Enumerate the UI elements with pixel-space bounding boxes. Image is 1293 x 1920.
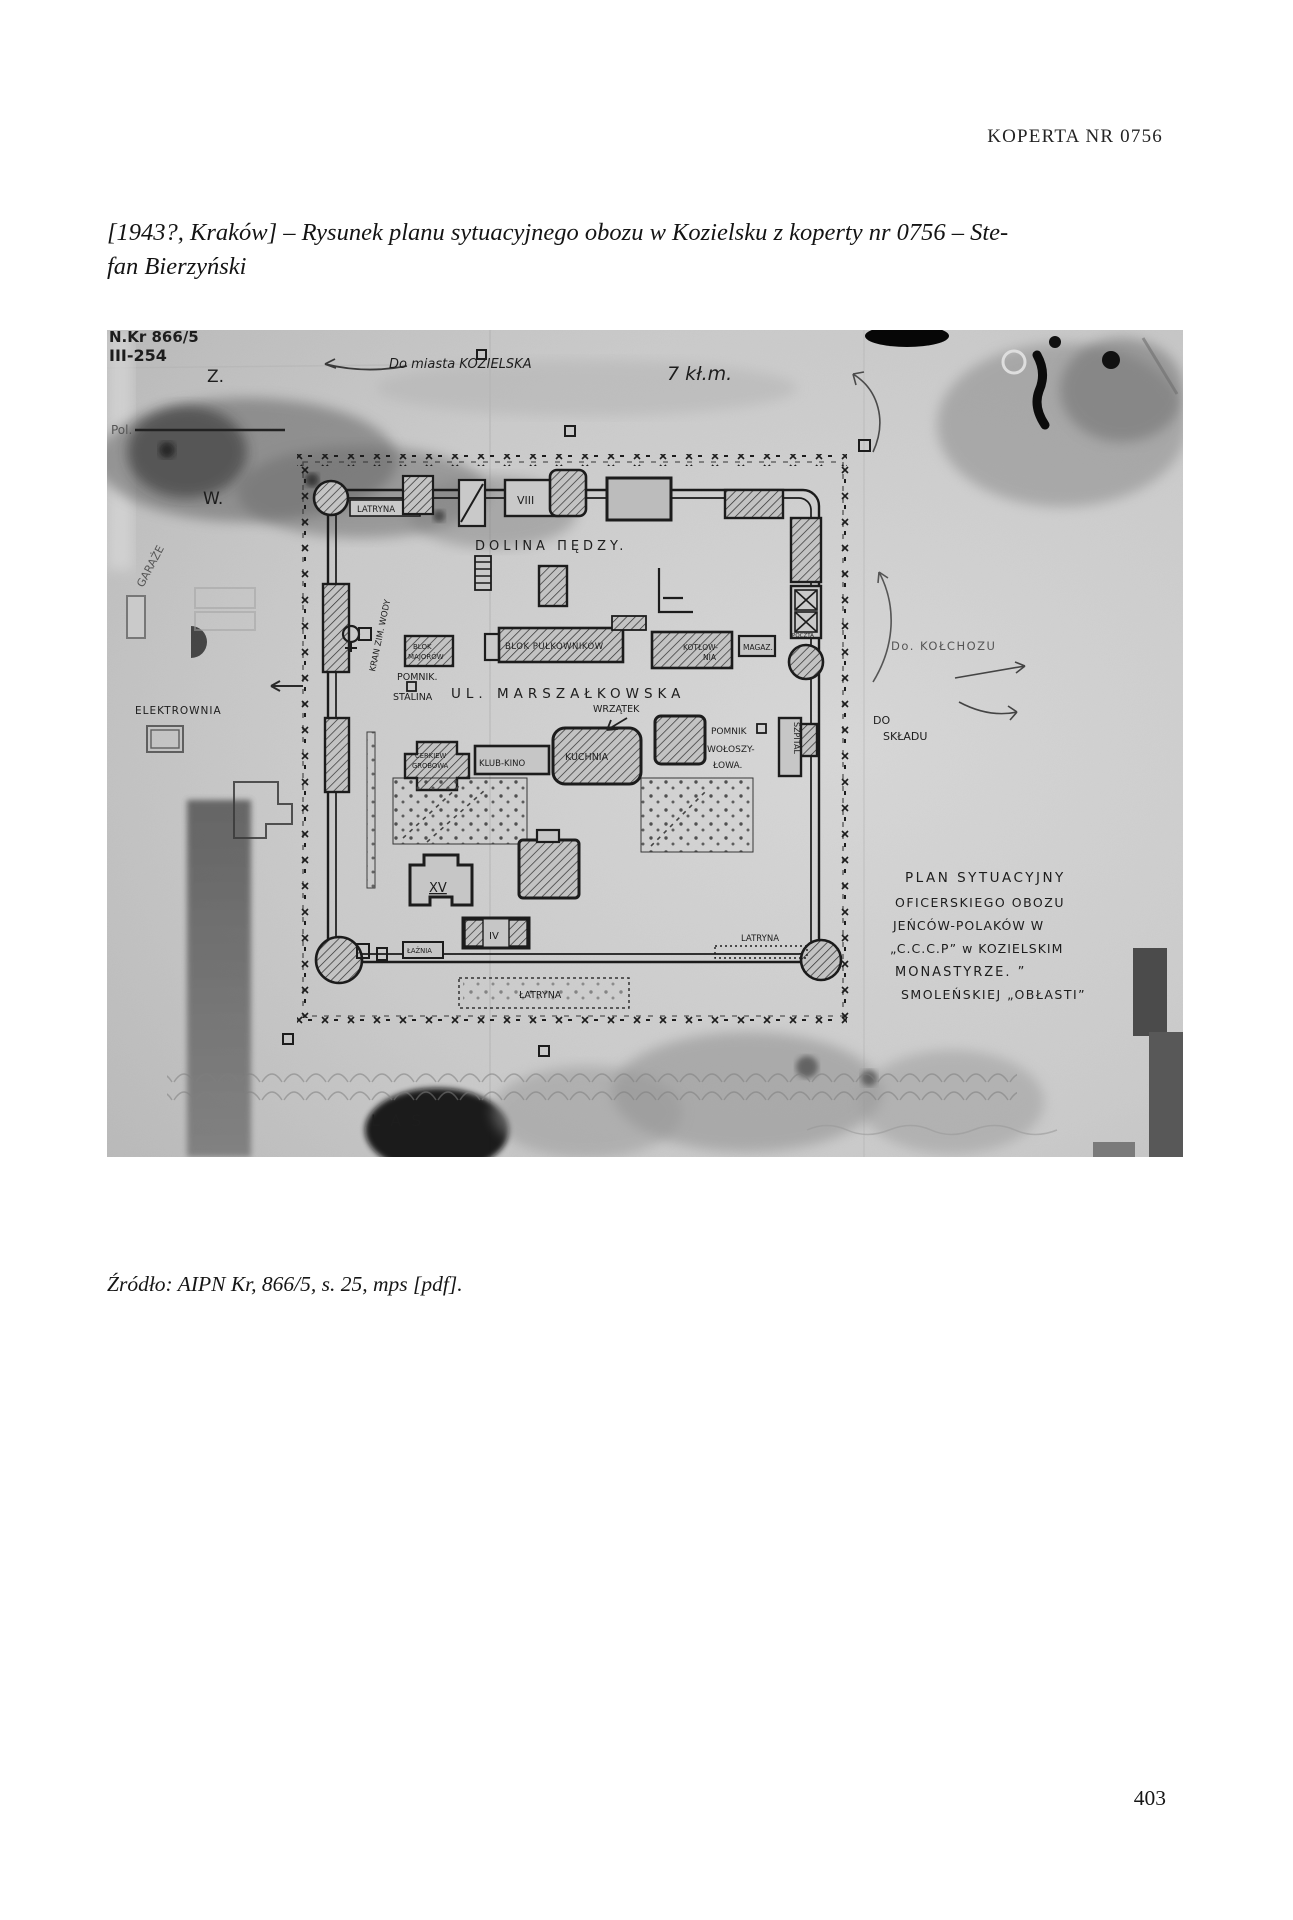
label-plan-6: SMOLEŃSKIEJ „OBŁASTI” <box>901 987 1086 1002</box>
source-line: Źródło: AIPN Kr, 866/5, s. 25, mps [pdf]… <box>107 1272 463 1297</box>
label-latryna-right: LATRYNA <box>741 934 779 944</box>
label-do-kolchozu: Do. KOŁCHOZU <box>891 639 996 653</box>
archival-photo: N.Kr 866/5 III-254 Z. Pol. W. Do miasta … <box>107 330 1183 1157</box>
label-kotlownia-2: NIA <box>703 653 717 662</box>
label-magazyn: MAGAZ. <box>743 643 773 652</box>
label-plan-1: PLAN SYTUACYJNY <box>905 870 1066 886</box>
label-blok-majorow-2: MAJORÓW <box>408 652 444 661</box>
label-viii: VIII <box>517 494 534 507</box>
label-w: W. <box>203 489 223 509</box>
label-pol: Pol. <box>111 423 132 437</box>
label-do-skladu-1: DO <box>873 714 890 727</box>
label-plan-2: OFICERSKIEGO OBOZU <box>895 895 1065 910</box>
label-pomnik-stalina-1: POMNIK. <box>397 672 438 683</box>
label-route-distance: 7 kł.m. <box>667 363 732 385</box>
running-head: KOPERTA NR 0756 <box>987 126 1163 148</box>
label-pomnik-stalina-2: STALINA <box>393 692 433 703</box>
label-poczta: POCZTA <box>792 633 814 639</box>
label-latryna-top: LATRYNA <box>357 505 395 515</box>
page-number: 403 <box>1134 1786 1166 1811</box>
tower-top-left <box>314 481 348 515</box>
book-page: KOPERTA NR 0756 [1943?, Kraków] – Rysune… <box>0 0 1293 1920</box>
label-dolina: DOLINA ΠĘDZY. <box>475 539 627 554</box>
label-iv: IV <box>489 931 499 942</box>
caption-line-1: [1943?, Kraków] – Rysunek planu sytuacyj… <box>107 216 1169 250</box>
label-ulica: UL. MARSZAŁKOWSKA <box>451 686 685 702</box>
label-kuchnia: KUCHNIA <box>565 752 609 763</box>
label-latryna-bottom: ŁATRYNA <box>518 990 562 1001</box>
label-elektrownia: ELEKTROWNIA <box>135 705 222 717</box>
label-z: Z. <box>207 367 224 387</box>
running-head-text: KOPERTA NR 0756 <box>987 126 1163 147</box>
label-pomnik-woloszylowa-3: ŁOWA. <box>712 761 742 771</box>
label-cerkiew-2: GROBOWA <box>412 762 449 770</box>
label-klub-kino: KLUB-KINO <box>479 759 525 769</box>
label-blok-majorow-1: BLOK <box>413 643 432 651</box>
label-plan-5: MONASTYRZE. ” <box>895 965 1026 980</box>
label-pomnik-woloszylowa-1: POMNIK <box>711 727 748 737</box>
figure-caption: [1943?, Kraków] – Rysunek planu sytuacyj… <box>107 216 1169 284</box>
label-szpital: SZPITAL <box>792 722 801 754</box>
label-route-top: Do miasta KOZIELSKA <box>389 357 532 372</box>
label-blok-pulkownikow: BLOK PUŁKOWNIKÓW <box>505 640 604 652</box>
label-do-skladu-2: SKŁADU <box>883 730 927 743</box>
label-las: LAS <box>371 1111 431 1130</box>
archive-stamp-line1: N.Kr 866/5 <box>109 330 199 346</box>
archive-stamp-line2: III-254 <box>109 346 167 365</box>
building-pomnik-woloszylowa <box>655 716 705 764</box>
building-poczta <box>791 586 821 638</box>
label-kotlownia-1: KOTŁOW- <box>683 643 718 652</box>
building-blok-majorow <box>405 636 453 666</box>
label-plan-4: „C.C.C.P” w KOZIELSKIM <box>890 941 1063 956</box>
caption-line-2: fan Bierzyński <box>107 250 1169 284</box>
label-plan-3: JEŃCÓW-POLAKÓW W <box>892 918 1044 933</box>
label-laznia: ŁAŹNIA <box>406 946 432 955</box>
source-text: Źródło: AIPN Kr, 866/5, s. 25, mps [pdf]… <box>107 1272 463 1296</box>
garaze-box <box>127 596 145 638</box>
label-cerkiew-1: CERKIEW <box>415 752 447 760</box>
tower-bottom-left <box>316 937 362 983</box>
label-xv: XV <box>429 881 447 896</box>
label-wrzatek: WRZĄTEK <box>593 704 640 715</box>
label-pomnik-woloszylowa-2: WOŁOSZY- <box>707 745 755 755</box>
